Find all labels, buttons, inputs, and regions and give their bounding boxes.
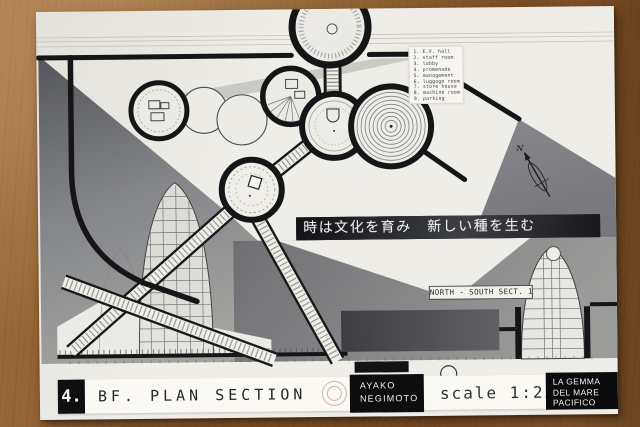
slogan-banner: 時は文化を育み 新しい種を生む (296, 214, 600, 240)
project-name-line1: LA GEMMA (553, 376, 618, 387)
stamp-seal-icon (322, 381, 347, 406)
title-block: 4. BF. PLAN SECTION AYAKO NEGIMOTO scale… (58, 375, 550, 414)
author-name-line1: AYAKO (360, 379, 424, 393)
author-box: AYAKO NEGIMOTO (350, 374, 424, 413)
sheet-number: 4. (58, 380, 85, 414)
paper-grain (36, 6, 618, 420)
plan-section-drawing: N (36, 6, 618, 420)
legend-item: 9. parking (414, 97, 463, 103)
project-name-line3: PACIFICO (553, 397, 618, 408)
project-name-line2: DEL MARE (553, 386, 618, 397)
legend-box: 1. E.V. hall 2. staff room 3. lobby 4. p… (408, 46, 464, 105)
photo-of-drawing: N 1. E.V. hall 2. staff room 3. lobby 4.… (0, 0, 640, 427)
sheet-title: BF. PLAN SECTION (98, 377, 307, 413)
poster-paper: N 1. E.V. hall 2. staff room 3. lobby 4.… (36, 6, 618, 420)
section-label: NORTH - SOUTH SECT. 1 (429, 285, 533, 300)
author-name-line2: NEGIMOTO (360, 392, 424, 406)
project-box: LA GEMMA DEL MARE PACIFICO (546, 372, 618, 410)
